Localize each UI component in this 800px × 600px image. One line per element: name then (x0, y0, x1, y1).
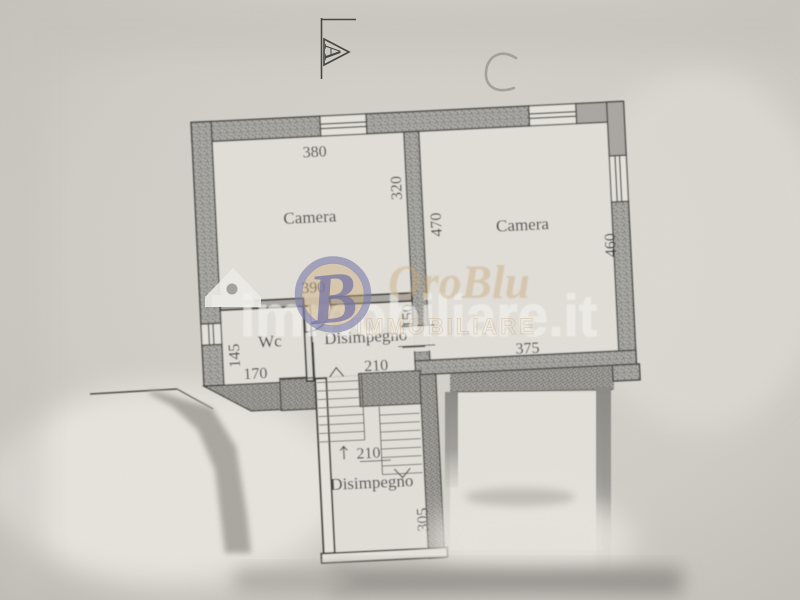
svg-text:IMMOBILIARE: IMMOBILIARE (356, 314, 537, 339)
svg-text:Disimpegno: Disimpegno (330, 471, 414, 494)
svg-text:OroBlu: OroBlu (388, 256, 530, 309)
svg-text:320: 320 (388, 176, 406, 201)
svg-text:A: A (320, 44, 345, 61)
svg-text:460: 460 (602, 233, 620, 258)
svg-text:380: 380 (302, 143, 327, 161)
svg-text:B: B (304, 256, 361, 341)
svg-text:470: 470 (428, 212, 446, 237)
svg-text:Camera: Camera (496, 214, 550, 236)
svg-text:210: 210 (364, 357, 389, 375)
svg-text:170: 170 (243, 365, 268, 383)
svg-text:210: 210 (356, 445, 381, 463)
svg-text:Camera: Camera (283, 206, 337, 228)
